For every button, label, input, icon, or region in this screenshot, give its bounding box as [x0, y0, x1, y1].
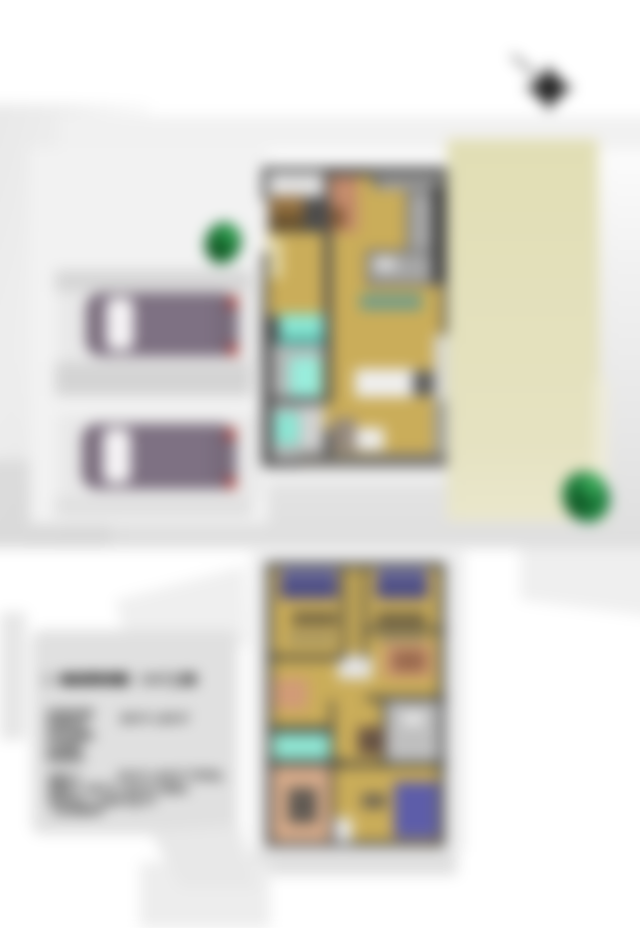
- svg-text:DINING: DINING: [47, 752, 84, 764]
- svg-text:MADRONE: MADRONE: [60, 671, 129, 687]
- svg-text:1,264 SQ FT: 1,264 SQ FT: [96, 795, 157, 807]
- svg-text:20'-0" x 20'-0": 20'-0" x 20'-0": [121, 713, 190, 725]
- svg-text:12'-4" x 16'-0" TOTAL: 12'-4" x 16'-0" TOTAL: [118, 770, 224, 782]
- svg-text:UNIT: UNIT: [140, 672, 170, 687]
- svg-text:42'-0" x 30'-6" AREA: 42'-0" x 30'-6" AREA: [87, 783, 188, 795]
- svg-text:| 2B: | 2B: [172, 672, 197, 687]
- svg-text:1: 1: [44, 672, 51, 687]
